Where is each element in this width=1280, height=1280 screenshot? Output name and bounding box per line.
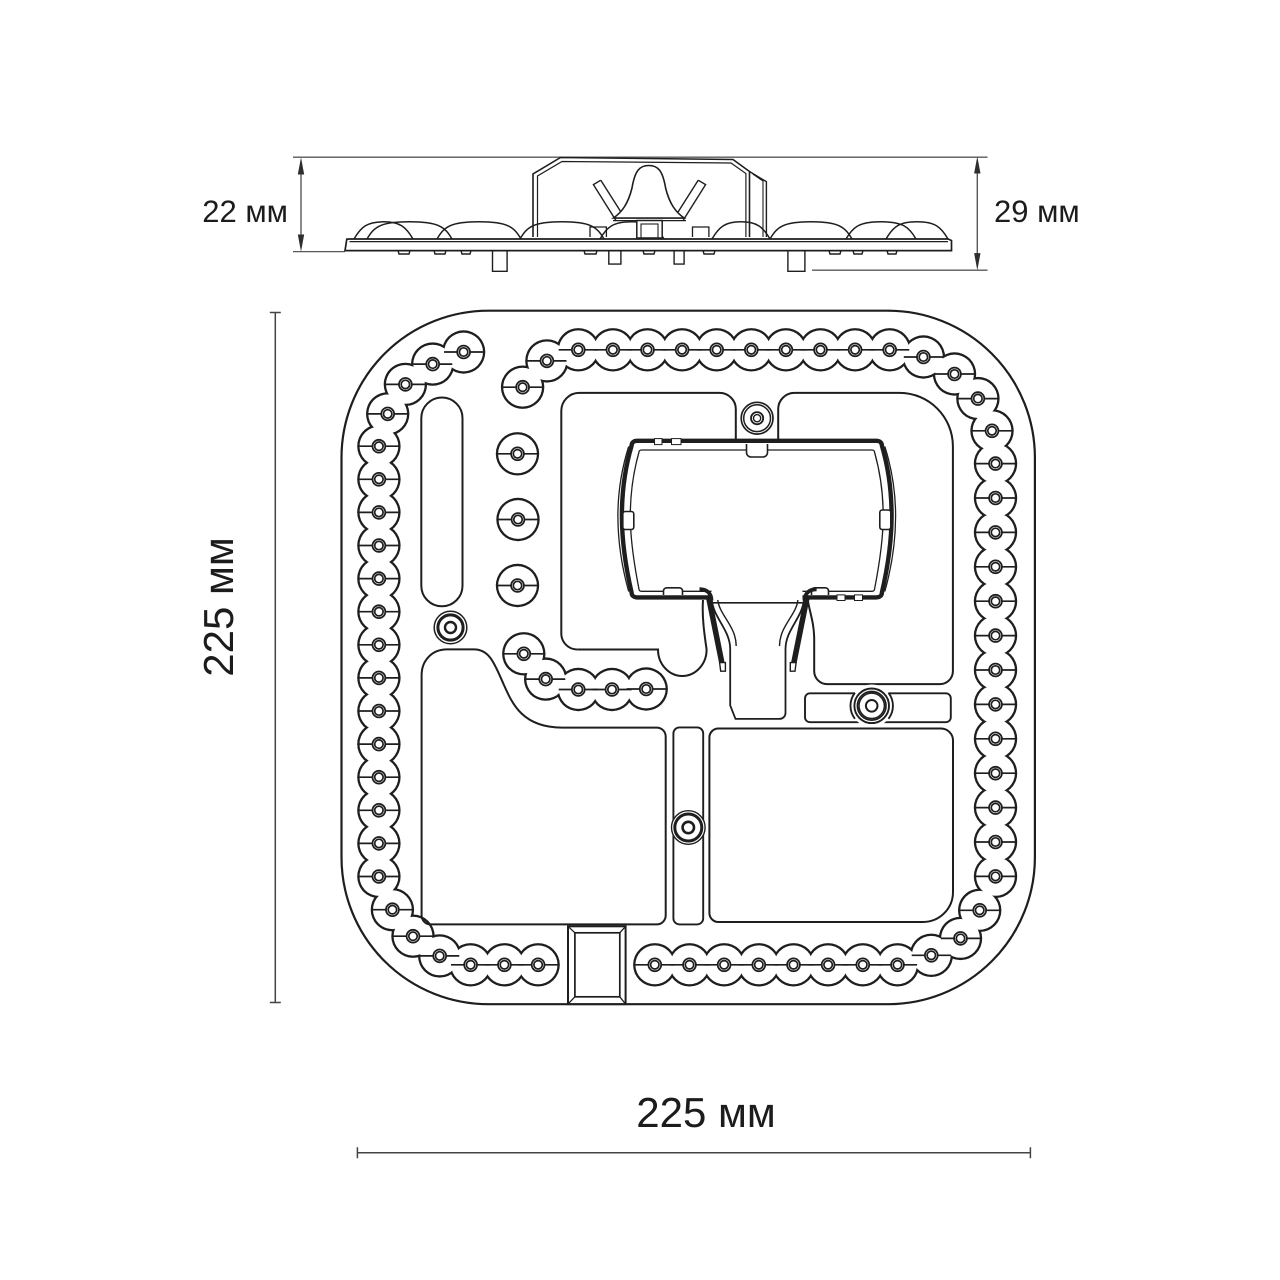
svg-text:29 мм: 29 мм: [994, 194, 1080, 229]
svg-text:22 мм: 22 мм: [202, 194, 288, 229]
svg-text:225 мм: 225 мм: [636, 1089, 776, 1136]
svg-text:225 мм: 225 мм: [195, 537, 242, 677]
